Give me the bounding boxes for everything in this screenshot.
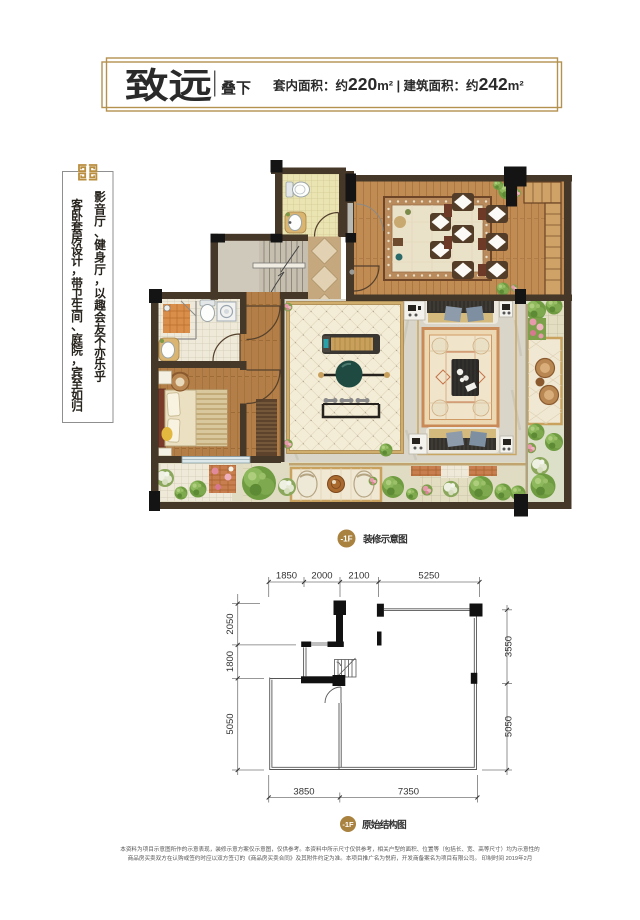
svg-text:2050: 2050 (225, 613, 236, 634)
svg-text:3550: 3550 (504, 636, 515, 657)
svg-text:本资料为项目示意图所作的示意表现，装修示意方案仅示意图，仅供: 本资料为项目示意图所作的示意表现，装修示意方案仅示意图，仅供参考。本资料中所示尺… (120, 845, 540, 853)
svg-text:2000: 2000 (311, 571, 332, 582)
svg-text:2100: 2100 (348, 571, 369, 582)
svg-text:1850: 1850 (276, 571, 297, 582)
svg-text:7350: 7350 (398, 787, 419, 798)
svg-text:装修示意图: 装修示意图 (362, 534, 407, 546)
svg-text:5250: 5250 (418, 571, 439, 582)
svg-text:客卧套房设计，带卫生间、庭院，宾至如归: 客卧套房设计，带卫生间、庭院，宾至如归 (70, 198, 83, 414)
svg-text:叠下: 叠下 (221, 79, 251, 97)
svg-text:商品房买卖双方在认购或签约时应以双方签订的《商品房买卖合同》: 商品房买卖双方在认购或签约时应以双方签订的《商品房买卖合同》及其附件约定为准。本… (128, 854, 533, 862)
svg-text:3850: 3850 (293, 787, 314, 798)
svg-text:5050: 5050 (225, 713, 236, 734)
svg-text:影音厅、健身厅，以趣会友不亦乐乎: 影音厅、健身厅，以趣会友不亦乐乎 (93, 190, 106, 384)
svg-text:-1F: -1F (342, 820, 354, 829)
svg-text:致远: 致远 (125, 67, 212, 106)
svg-text:1800: 1800 (225, 651, 236, 672)
svg-text:-1F: -1F (341, 535, 353, 544)
svg-text:原始结构图: 原始结构图 (362, 819, 406, 831)
svg-text:5050: 5050 (504, 716, 515, 737)
